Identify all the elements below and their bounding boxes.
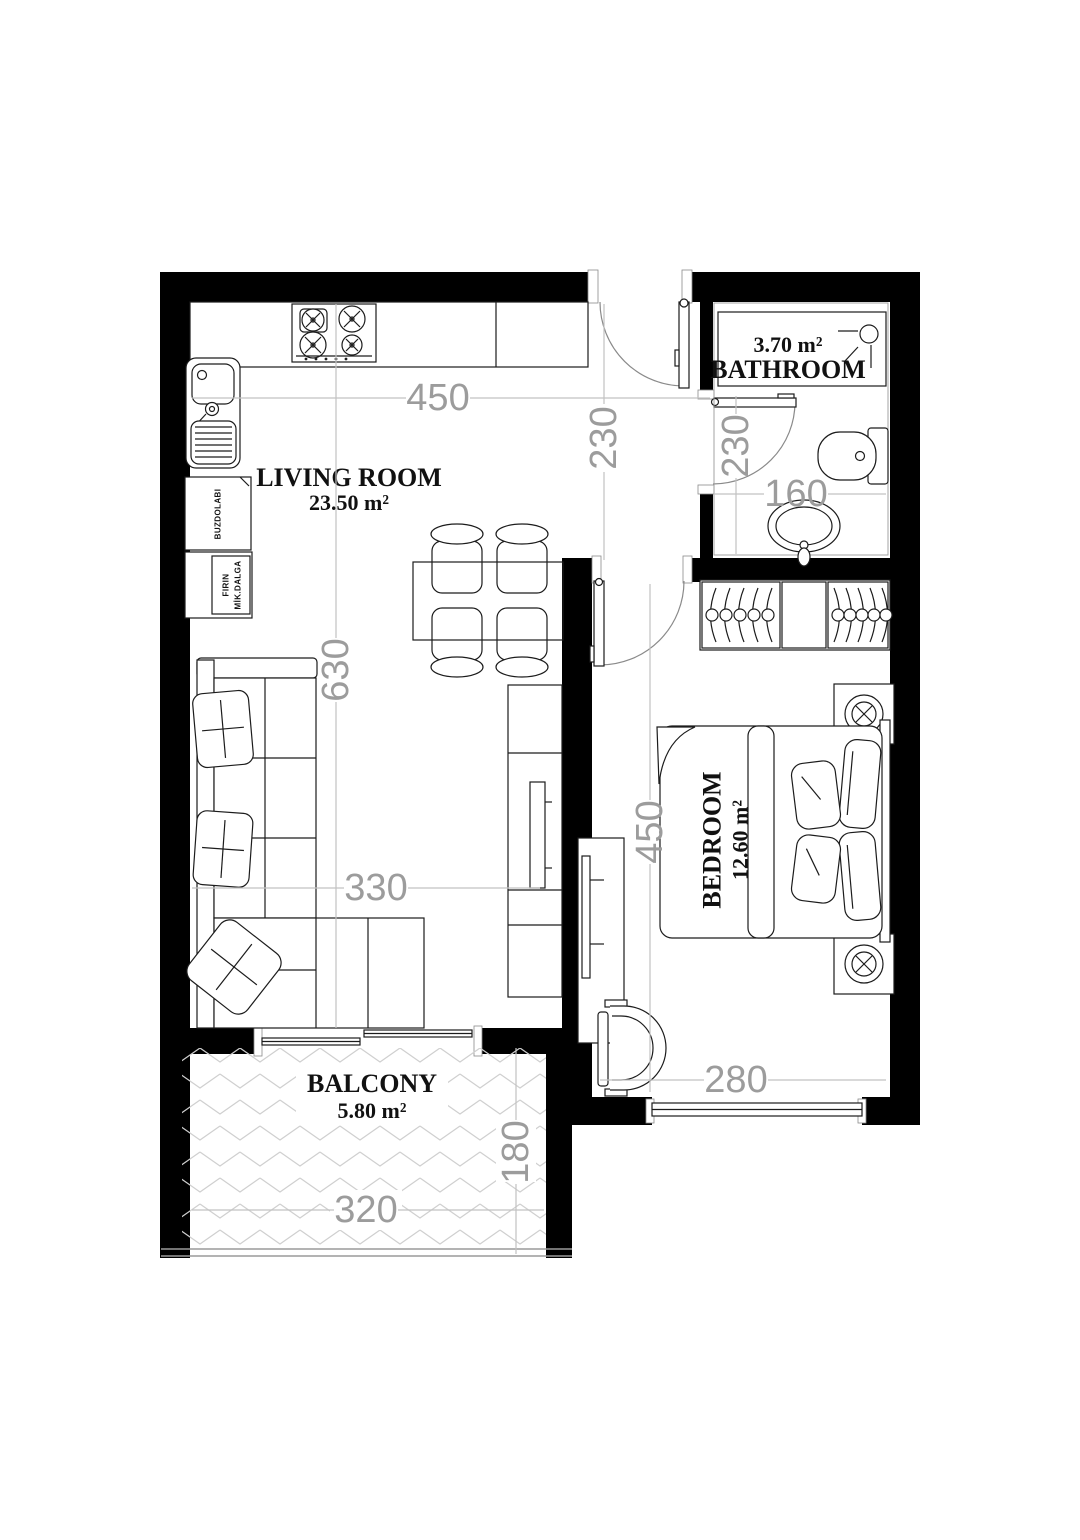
bedroom-door [590, 579, 684, 667]
bedroom-name: BEDROOM [698, 771, 727, 908]
oven-label-line2: MİK.DALGA [234, 561, 243, 610]
floor-plan-page: BALCONY 5.80 m² 3.70 m² BATHROOM [0, 0, 1080, 1540]
dim-bedroom-width: 280 [704, 1059, 767, 1101]
dim-living-width: 450 [406, 377, 469, 419]
entrance-jamb-right [682, 270, 692, 303]
wall-bedroom-bottom-right [862, 1097, 920, 1125]
wall-balcony-right [546, 1028, 572, 1258]
bathroom-door-leaf [714, 398, 796, 407]
bedroom-door-jamb-right [683, 556, 692, 583]
dining-set [413, 524, 563, 677]
oven-microwave: FIRIN MİK.DALGA [185, 552, 252, 618]
entrance-door-leaf [679, 302, 689, 388]
nightstand-bottom [834, 934, 894, 994]
bedroom-door-leaf [594, 581, 604, 666]
sofa-pillow-2 [192, 810, 253, 888]
balcony-name: BALCONY [307, 1069, 437, 1098]
balcony-area: 5.80 m² [338, 1098, 407, 1123]
burner-3 [300, 332, 326, 358]
entrance-door-handle [675, 350, 679, 366]
bathroom-area: 3.70 m² [754, 332, 823, 357]
dim-sofa-span: 330 [344, 867, 407, 909]
oven-label-line1: FIRIN [222, 574, 231, 597]
bedroom-door-swing-arc [600, 581, 684, 665]
dining-chair-2 [497, 541, 547, 593]
stove [292, 304, 376, 362]
sofa-armrest-top [197, 658, 317, 678]
double-bed: BEDROOM 12.60 m² [657, 720, 890, 942]
dining-chair-4 [497, 608, 547, 660]
kitchen-counter [190, 302, 588, 367]
floor-plan-drawing: BALCONY 5.80 m² 3.70 m² BATHROOM [0, 0, 1080, 1540]
living-room-area: 23.50 m² [309, 490, 389, 515]
dim-balcony-depth: 180 [495, 1120, 537, 1183]
dim-bath-door: 230 [715, 414, 757, 477]
dining-chair-3 [432, 608, 482, 660]
balcony-sliding-door [262, 1030, 472, 1045]
entrance-door [600, 299, 689, 388]
sink-drainer [191, 421, 236, 464]
entrance-door-swing-arc [600, 302, 684, 386]
shower-label-box: 3.70 m² BATHROOM [710, 312, 886, 386]
room-living: LIVING ROOM 23.50 m² [256, 463, 442, 515]
bedroom-door-hinge [596, 579, 603, 586]
dining-chair-1 [432, 541, 482, 593]
bedroom-window [652, 1103, 862, 1116]
fridge: BUZDOLABI [185, 477, 251, 550]
wall-top-left [160, 272, 590, 302]
fridge-label: BUZDOLABI [214, 489, 223, 540]
wall-top-right [692, 272, 920, 302]
dresser-mirror [582, 856, 590, 978]
bathroom-name: BATHROOM [710, 355, 866, 384]
burner-2 [339, 306, 365, 332]
bathroom-door-jamb-bottom [698, 485, 714, 494]
bathroom-door-handle [778, 394, 794, 398]
dim-bedroom-depth: 450 [629, 800, 671, 863]
dim-hall-depth: 230 [583, 406, 625, 469]
burner-4 [342, 335, 362, 355]
dim-living-depth: 630 [315, 638, 357, 701]
bedroom-furniture: BEDROOM 12.60 m² [578, 580, 894, 1096]
bedroom-chair [598, 1000, 666, 1096]
entrance-jamb-left [588, 270, 598, 303]
sofa [182, 658, 424, 1028]
dim-balcony-width: 320 [334, 1189, 397, 1231]
wall-bedroom-bottom-left [562, 1097, 652, 1125]
kitchen-sink [186, 358, 240, 468]
bathroom-door-hinge [712, 399, 719, 406]
toilet [818, 428, 888, 484]
bedroom-area: 12.60 m² [728, 800, 753, 880]
dim-bath-width: 160 [764, 473, 827, 515]
sofa-pillow-1 [192, 690, 254, 769]
entrance-door-hinge [680, 299, 688, 307]
tv-screen [530, 782, 545, 888]
wall-hall-bath-lower [700, 494, 713, 558]
wall-bath-bedroom [692, 558, 890, 582]
bedroom-door-handle [590, 646, 594, 662]
kitchen-faucet [206, 403, 219, 416]
tv-unit [508, 685, 562, 997]
living-room-name: LIVING ROOM [256, 463, 442, 492]
wardrobe [700, 580, 892, 650]
burner-1 [302, 309, 324, 331]
